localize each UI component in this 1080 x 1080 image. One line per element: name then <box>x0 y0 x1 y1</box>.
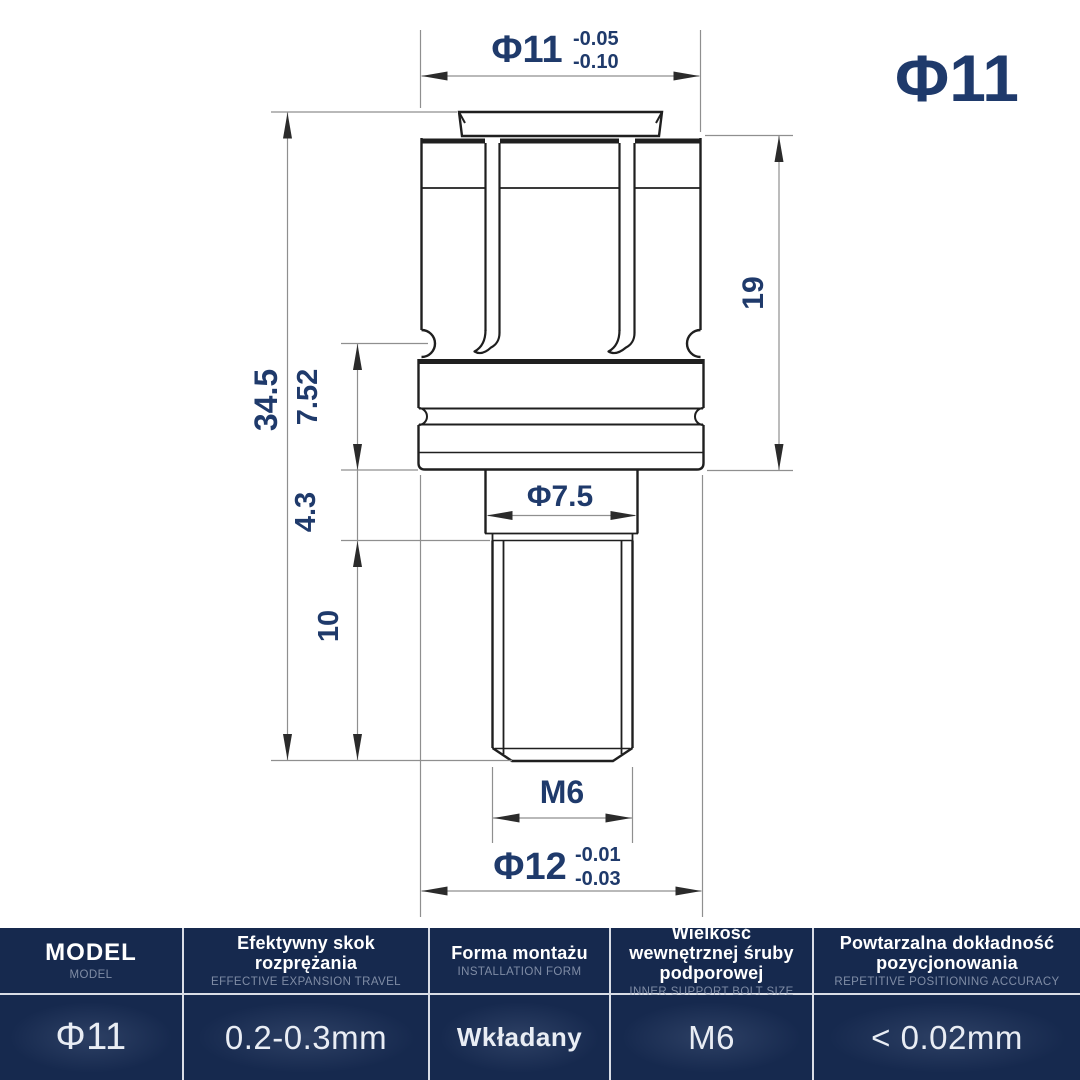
part-head-cap <box>459 112 662 136</box>
spec-header-installation-form-pl: Forma montażu <box>451 943 588 963</box>
dim-top-diameter-tol-lower: -0.10 <box>573 51 619 73</box>
dim-head-height: 19 <box>705 136 793 471</box>
dim-collar-height-label: 7.52 <box>292 369 324 425</box>
size-badge: Φ11 <box>895 41 1019 115</box>
spec-header-model-pl: MODEL <box>45 940 137 967</box>
spec-header-expansion-travel-en: EFFECTIVE EXPANSION TRAVEL <box>211 976 401 988</box>
dim-flange-diameter-tol-lower: -0.03 <box>575 868 621 890</box>
dim-total-height-label: 34.5 <box>248 369 284 431</box>
dim-shoulder-diameter-label: Φ7.5 <box>527 480 593 513</box>
dim-head-height-label: 19 <box>737 276 770 309</box>
spec-value-positioning-accuracy-text: < 0.02mm <box>871 1019 1023 1057</box>
dim-thread-size-label: M6 <box>540 774 584 810</box>
dim-thread-size: M6 <box>493 767 633 843</box>
spec-header-model-en: MODEL <box>70 969 113 981</box>
spec-table: MODEL MODEL Efektywny skok rozprężania E… <box>0 928 1080 1080</box>
dim-thread-length-label: 10 <box>313 610 345 642</box>
spec-header-positioning-accuracy: Powtarzalna dokładność pozycjonowania RE… <box>814 928 1080 995</box>
part-expansion-body <box>421 138 701 357</box>
part-flange <box>418 359 704 470</box>
dim-top-diameter-label: Φ11 <box>491 29 562 71</box>
spec-value-installation-form-text: Wkładany <box>457 1022 582 1053</box>
dim-stack-left: 7.52 4.3 10 <box>271 344 512 761</box>
spec-value-model-text: Φ11 <box>55 1016 126 1059</box>
dim-shoulder-height-label: 4.3 <box>290 492 322 532</box>
technical-drawing: Φ11 -0.05 -0.10 19 34.5 7.52 4.3 10 <box>0 0 1080 928</box>
dim-total-height: 34.5 <box>248 112 457 760</box>
spec-header-installation-form: Forma montażu INSTALLATION FORM <box>430 928 611 995</box>
spec-value-support-bolt-size: M6 <box>611 995 814 1080</box>
spec-value-expansion-travel: 0.2-0.3mm <box>184 995 430 1080</box>
dim-top-diameter-tol-upper: -0.05 <box>573 28 619 50</box>
spec-header-support-bolt-size-en: INNER SUPPORT BOLT SIZE <box>629 986 793 998</box>
spec-header-support-bolt-size-pl: Wielkość wewnętrznej śruby podporowej <box>619 923 804 983</box>
spec-header-expansion-travel-pl: Efektywny skok rozprężania <box>192 933 420 973</box>
dim-shoulder-diameter: Φ7.5 <box>487 480 637 520</box>
dim-flange-diameter-label: Φ12 <box>493 846 566 888</box>
spec-header-expansion-travel: Efektywny skok rozprężania EFFECTIVE EXP… <box>184 928 430 995</box>
spec-value-support-bolt-size-text: M6 <box>688 1019 735 1057</box>
spec-value-model: Φ11 <box>0 995 184 1080</box>
spec-header-support-bolt-size: Wielkość wewnętrznej śruby podporowej IN… <box>611 928 814 995</box>
dim-flange-diameter-tol-upper: -0.01 <box>575 844 621 866</box>
spec-header-positioning-accuracy-pl: Powtarzalna dokładność pozycjonowania <box>822 933 1072 973</box>
part-threaded-stud <box>493 541 633 762</box>
spec-value-installation-form: Wkładany <box>430 995 611 1080</box>
page: Φ11 -0.05 -0.10 19 34.5 7.52 4.3 10 <box>0 0 1080 1080</box>
spec-header-model: MODEL MODEL <box>0 928 184 995</box>
spec-value-positioning-accuracy: < 0.02mm <box>814 995 1080 1080</box>
spec-header-positioning-accuracy-en: REPETITIVE POSITIONING ACCURACY <box>834 976 1059 988</box>
spec-value-expansion-travel-text: 0.2-0.3mm <box>225 1019 387 1057</box>
spec-header-installation-form-en: INSTALLATION FORM <box>458 966 582 978</box>
